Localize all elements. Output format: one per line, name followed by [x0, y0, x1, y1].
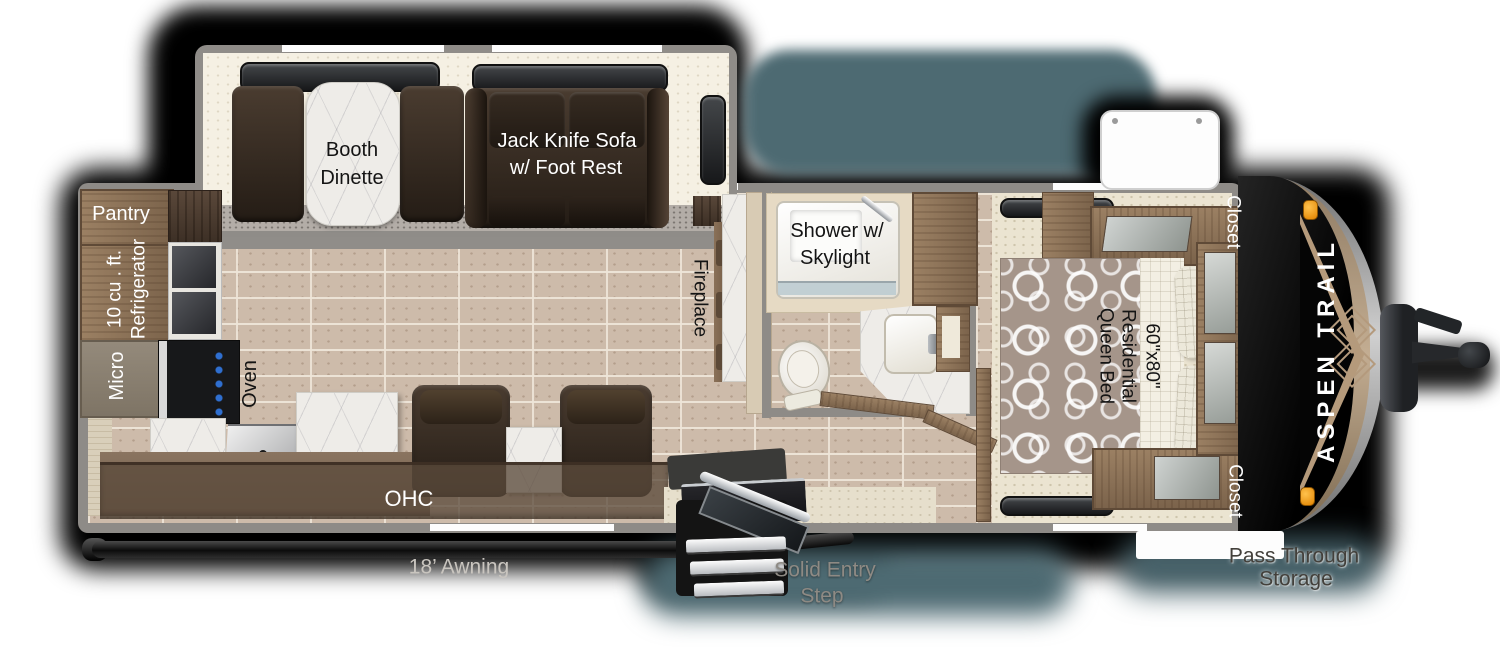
pass-through-label-line1: Pass Through — [1229, 546, 1359, 567]
fridge-label-line2: Refrigerator — [130, 239, 149, 339]
dinette-label-line2: Dinette — [320, 168, 383, 188]
slideout-edge — [195, 237, 737, 249]
closet-top-label: Closet — [1224, 195, 1243, 249]
overhead-cabinet-corner — [168, 190, 222, 244]
brand-logo-text: ASPEN TRAIL — [1315, 237, 1339, 463]
oven-appliance — [158, 340, 240, 424]
sofa-armrest-left — [465, 88, 487, 228]
dinette-bench-right — [400, 86, 464, 222]
refrigerator-cabinet — [80, 244, 174, 342]
hitch-arm-upper — [1413, 307, 1463, 335]
bedroom-door-open — [976, 368, 991, 522]
window-bottom-1 — [430, 524, 614, 531]
nightstand-bottom-glass — [1154, 456, 1220, 500]
bed-label-line2: Queen Bed — [1097, 308, 1116, 404]
propane-screw-right — [1196, 118, 1202, 124]
shower-glass-door — [778, 281, 896, 295]
theater-seat-right-back — [567, 390, 645, 424]
hitch-coupler — [1458, 342, 1490, 368]
propane-screw-left — [1112, 118, 1118, 124]
pass-through-label-line2: Storage — [1259, 569, 1333, 590]
shower-label-line1: Shower w/ — [790, 221, 883, 241]
linen-cabinet — [912, 192, 978, 306]
slideout-window-strip-1 — [282, 45, 444, 52]
entry-step-label-line1: Solid Entry — [774, 560, 876, 581]
sofa-label-line1: Jack Knife Sofa — [498, 131, 637, 151]
refrigerator-door-bottom — [172, 292, 216, 334]
wardrobe-mirror-bottom — [1204, 342, 1236, 424]
bedroom-cube-cabinet — [1042, 192, 1094, 260]
pantry-label: Pantry — [92, 204, 150, 224]
closet-bottom-label: Closet — [1226, 464, 1245, 518]
dinette-label-line1: Booth — [326, 140, 378, 160]
bed-size-label: 60"x80" — [1143, 323, 1162, 388]
marker-light-bottom — [1300, 487, 1315, 506]
fireplace-front — [722, 194, 748, 382]
oven-burner-knobs — [212, 346, 226, 416]
refrigerator-door-top — [172, 246, 216, 288]
nightstand-top-glass — [1101, 216, 1192, 252]
step-tread-3 — [694, 580, 784, 598]
awning-roller-bar — [92, 541, 696, 558]
fireplace-label: Fireplace — [691, 259, 710, 337]
rv-floorplan: Booth Dinette Jack Knife Sofa w/ Foot Re… — [0, 0, 1500, 650]
window-bottom-2 — [1053, 524, 1147, 531]
awning-label: 18’ Awning — [409, 557, 509, 578]
bed-label-line1: Residential — [1119, 309, 1138, 403]
sofa-label-line2: w/ Foot Rest — [510, 158, 622, 178]
shower-label-line2: Skylight — [800, 248, 870, 268]
slideout-window-strip-2 — [492, 45, 662, 52]
entry-step-label-line2: Step — [800, 586, 843, 607]
micro-label: Micro — [107, 352, 127, 401]
oven-label: Oven — [240, 360, 260, 408]
theater-seat-left-back — [420, 390, 502, 424]
fridge-label-line1: 10 cu . ft. — [106, 250, 125, 328]
sofa-footrest-left — [489, 196, 565, 226]
ohc-label: OHC — [385, 488, 434, 510]
vanity-shelf-inset — [942, 316, 960, 358]
wardrobe-mirror-top — [1204, 252, 1236, 334]
marker-light-top — [1303, 200, 1318, 220]
propane-cover-panel — [1100, 110, 1220, 190]
sofa-armrest-right — [647, 88, 669, 228]
sofa-footrest-right — [569, 196, 645, 226]
dinette-bench-left — [232, 86, 304, 222]
slideout-side-window — [700, 95, 726, 185]
